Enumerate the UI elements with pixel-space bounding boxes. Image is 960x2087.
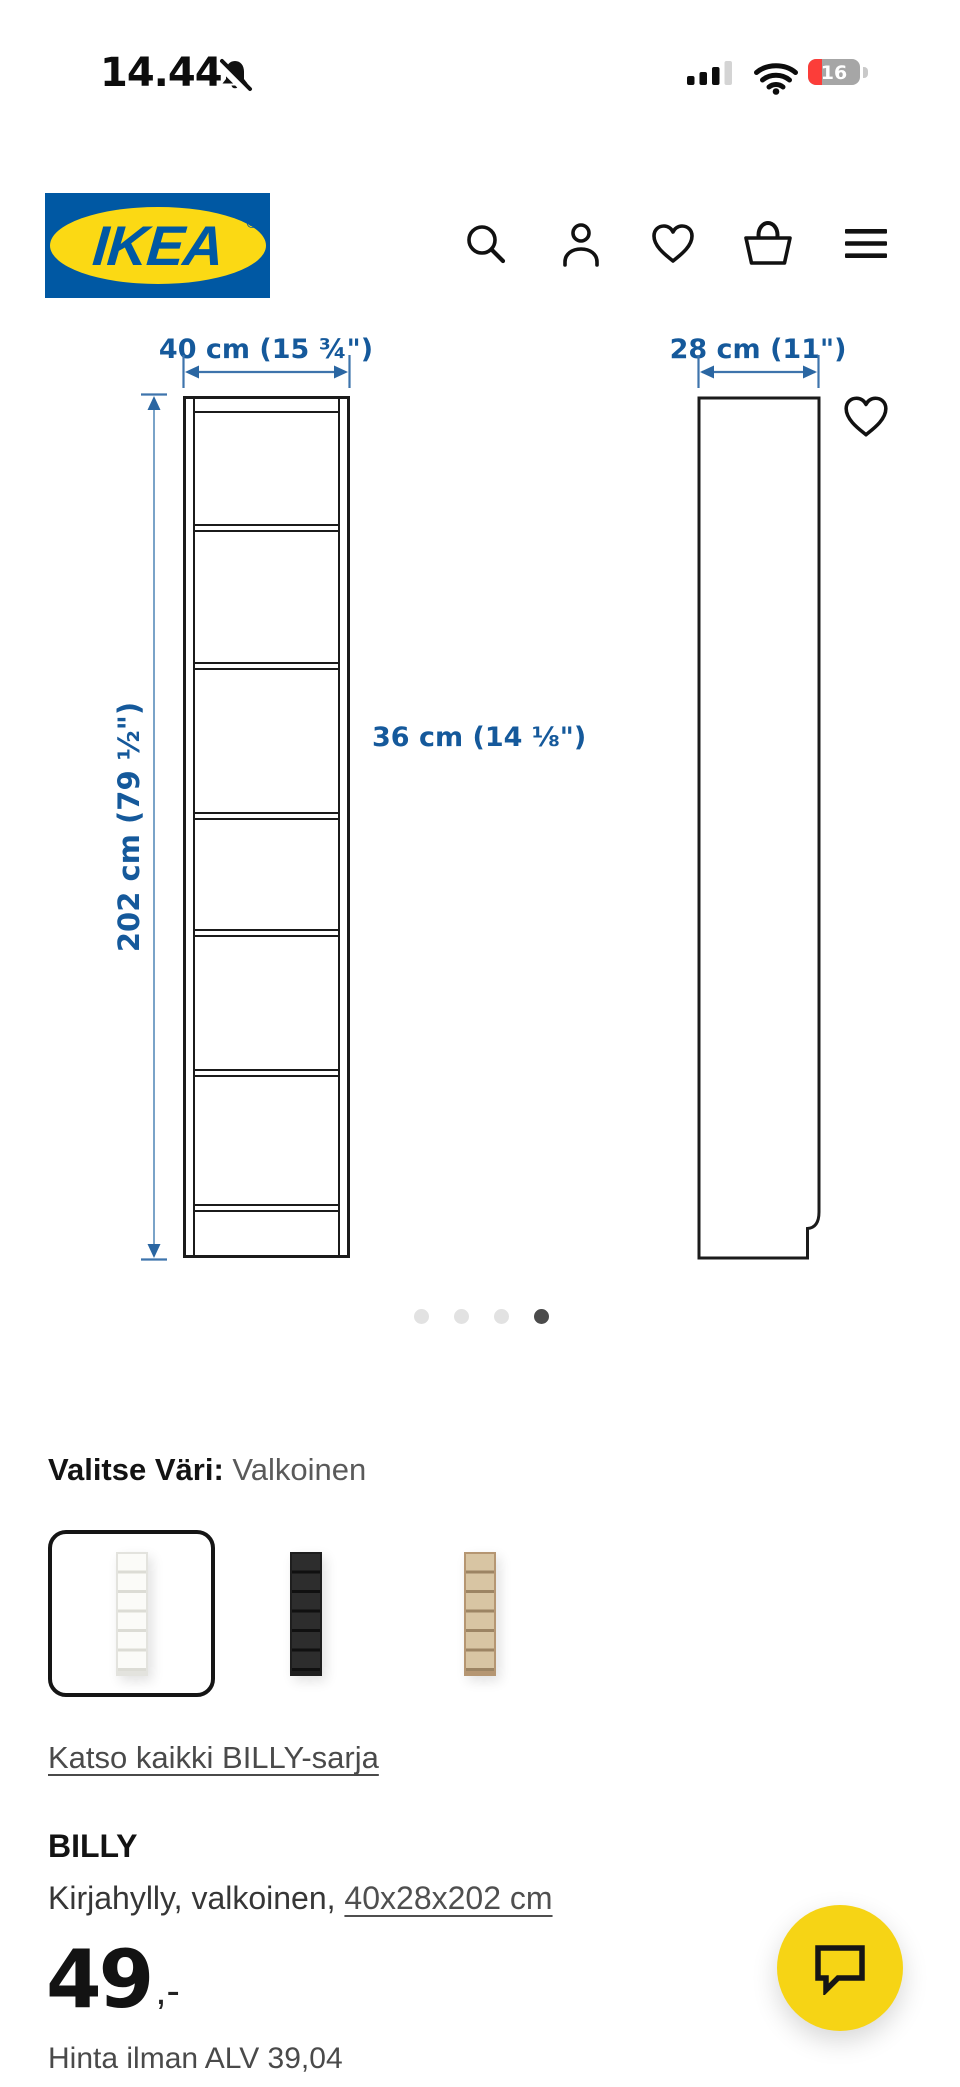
basket-icon — [741, 221, 795, 267]
ikea-logo-ellipse: IKEA ® — [50, 207, 266, 284]
menu-button[interactable] — [839, 220, 893, 268]
front-view-right-panel-line — [338, 399, 340, 1255]
inner-width-dimension-label: 36 cm (14 ⅛") — [372, 722, 586, 753]
favorite-product-button[interactable] — [842, 394, 890, 445]
white-bookcase-thumbnail — [116, 1552, 148, 1676]
product-description: Kirjahylly, valkoinen, 40x28x202 cm — [48, 1880, 553, 1917]
width-dimension-arrow — [182, 355, 351, 389]
chat-bubble-icon — [811, 1941, 869, 1995]
price-integer: 49 — [46, 1942, 151, 2018]
person-icon — [560, 221, 602, 267]
chat-button[interactable] — [777, 1905, 903, 2031]
registered-trademark: ® — [246, 215, 257, 232]
carousel-dot-4-active[interactable] — [534, 1309, 549, 1324]
carousel-dot-3[interactable] — [494, 1309, 509, 1324]
price-without-vat-note: Hinta ilman ALV 39,04 — [48, 2042, 343, 2076]
oak-bookcase-thumbnail — [464, 1552, 496, 1676]
wifi-icon — [753, 61, 799, 100]
product-price: 49 ,- — [46, 1942, 180, 2018]
heart-icon — [842, 394, 890, 440]
image-carousel-dots — [414, 1309, 549, 1324]
shelf-line — [195, 524, 338, 532]
ikea-logo-text: IKEA — [90, 218, 225, 274]
signal-strength-icon — [687, 60, 733, 90]
depth-dimension-arrow — [697, 355, 820, 389]
favorites-button[interactable] — [646, 220, 700, 268]
search-icon — [463, 221, 507, 267]
front-view-top-line — [195, 411, 338, 413]
shelf-line — [195, 1204, 338, 1212]
heart-icon — [650, 222, 696, 266]
ikea-logo[interactable]: IKEA ® — [45, 193, 270, 298]
cart-button[interactable] — [741, 220, 795, 268]
price-suffix: ,- — [155, 1969, 179, 2014]
black-bookcase-thumbnail — [290, 1552, 322, 1676]
shelf-line — [195, 662, 338, 670]
color-selector-label-bold: Valitse Väri: — [48, 1452, 224, 1487]
product-name: BILLY — [48, 1828, 138, 1865]
shelf-line — [195, 1069, 338, 1077]
shelf-line — [195, 929, 338, 937]
battery-percent: 16 — [808, 62, 860, 84]
notifications-muted-bell-icon — [216, 56, 254, 99]
battery-cap — [863, 67, 868, 78]
color-swatch-black[interactable] — [222, 1530, 389, 1697]
color-swatch-row — [48, 1530, 563, 1697]
battery-icon: 16 — [808, 59, 860, 85]
account-button[interactable] — [554, 220, 608, 268]
color-swatch-white-selected[interactable] — [48, 1530, 215, 1697]
carousel-dot-2[interactable] — [454, 1309, 469, 1324]
hamburger-icon — [845, 229, 887, 259]
product-dimensions-link[interactable]: 40x28x202 cm — [344, 1880, 552, 1916]
color-swatch-oak[interactable] — [396, 1530, 563, 1697]
status-time: 14.44 — [100, 50, 222, 96]
shelf-line — [195, 812, 338, 820]
color-selector-value: Valkoinen — [232, 1452, 366, 1487]
product-description-text: Kirjahylly, valkoinen, — [48, 1880, 344, 1916]
search-button[interactable] — [458, 220, 512, 268]
carousel-dot-1[interactable] — [414, 1309, 429, 1324]
height-dimension-arrow — [139, 393, 169, 1261]
series-link[interactable]: Katso kaikki BILLY-sarja — [48, 1740, 379, 1776]
bookcase-side-view-drawing — [697, 396, 821, 1260]
bookcase-front-view-drawing — [183, 396, 350, 1258]
color-selector-label: Valitse Väri: Valkoinen — [48, 1452, 366, 1488]
